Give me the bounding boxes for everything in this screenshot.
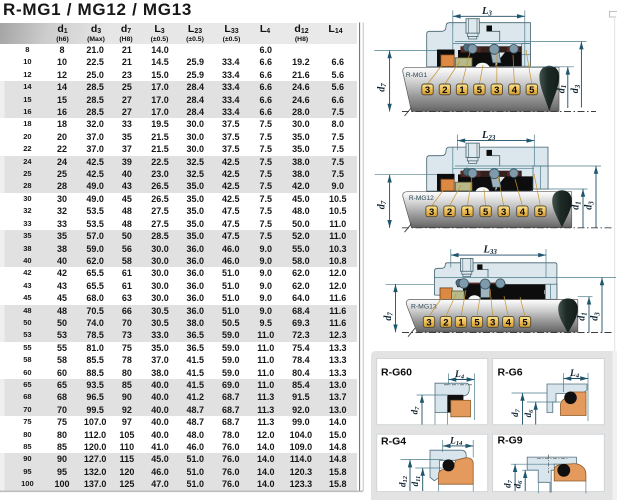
svg-text:1: 1 — [458, 317, 464, 328]
svg-text:1: 1 — [465, 207, 471, 218]
svg-text:3: 3 — [429, 207, 434, 218]
svg-text:1: 1 — [459, 85, 465, 96]
svg-text:d7: d7 — [376, 200, 388, 209]
svg-text:R-G60: R-G60 — [381, 367, 412, 379]
svg-text:3: 3 — [426, 317, 431, 328]
svg-text:R-MG1: R-MG1 — [406, 72, 428, 79]
svg-text:R-G4: R-G4 — [381, 436, 406, 448]
svg-text:d7: d7 — [376, 83, 388, 92]
svg-text:3: 3 — [490, 317, 495, 328]
svg-text:d3: d3 — [570, 84, 582, 93]
svg-text:3: 3 — [501, 207, 506, 218]
svg-text:d3: d3 — [584, 201, 596, 210]
svg-text:d1: d1 — [577, 312, 589, 321]
svg-text:d1: d1 — [571, 201, 583, 210]
svg-text:3: 3 — [494, 85, 499, 96]
svg-text:L23: L23 — [481, 130, 496, 142]
svg-text:5: 5 — [483, 207, 489, 218]
svg-text:R-G9: R-G9 — [498, 435, 523, 447]
svg-text:5: 5 — [538, 207, 544, 218]
svg-text:3: 3 — [425, 85, 430, 96]
svg-text:d7: d7 — [383, 312, 395, 321]
svg-text:d3: d3 — [590, 312, 602, 321]
svg-text:R-MG13: R-MG13 — [411, 304, 437, 311]
svg-text:5: 5 — [474, 317, 480, 328]
svg-text:R-G6: R-G6 — [498, 367, 523, 379]
svg-text:5: 5 — [477, 85, 483, 96]
svg-text:4: 4 — [520, 207, 526, 218]
svg-text:5: 5 — [529, 85, 535, 96]
svg-text:4: 4 — [506, 317, 512, 328]
svg-text:5: 5 — [522, 317, 528, 328]
svg-text:R-MG12: R-MG12 — [409, 195, 434, 202]
svg-text:L3: L3 — [481, 6, 492, 18]
svg-text:4: 4 — [512, 85, 518, 96]
svg-text:2: 2 — [442, 85, 447, 96]
svg-text:L33: L33 — [483, 244, 498, 256]
svg-text:2: 2 — [447, 207, 452, 218]
svg-text:2: 2 — [443, 317, 448, 328]
